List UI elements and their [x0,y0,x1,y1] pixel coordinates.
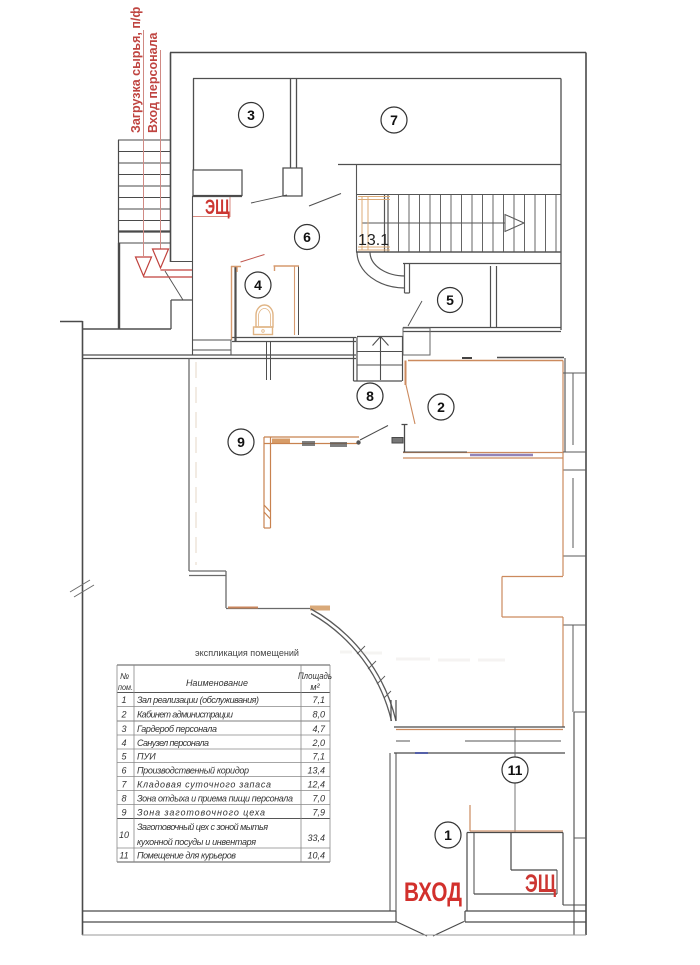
svg-text:7: 7 [390,112,398,128]
svg-text:6: 6 [303,229,311,245]
svg-text:Заготовочный цех с зоной мытья: Заготовочный цех с зоной мытья [137,822,268,832]
svg-text:4,7: 4,7 [312,724,326,734]
svg-text:8: 8 [366,388,374,404]
svg-text:Зона заготовочного цеха: Зона заготовочного цеха [137,808,265,818]
svg-text:Зона отдыха и приема пищи перс: Зона отдыха и приема пищи персонала [137,794,293,804]
svg-text:пом.: пом. [118,682,133,692]
svg-text:2: 2 [437,399,445,415]
svg-text:2,0: 2,0 [311,738,325,748]
svg-text:Производственный коридор: Производственный коридор [137,766,249,776]
svg-text:7,1: 7,1 [312,752,325,762]
svg-text:13.1: 13.1 [358,232,389,249]
svg-text:33,4: 33,4 [307,833,325,843]
svg-text:13,4: 13,4 [307,766,325,776]
svg-text:4: 4 [254,277,262,293]
svg-text:Помещение для курьеров: Помещение для курьеров [137,851,236,861]
svg-text:ВХОД: ВХОД [404,877,462,907]
svg-text:7,0: 7,0 [312,794,325,804]
svg-text:4: 4 [121,738,126,748]
svg-text:2: 2 [120,710,126,720]
svg-text:экспликация помещений: экспликация помещений [195,648,299,659]
svg-text:12,4: 12,4 [307,780,325,790]
svg-text:ПУИ: ПУИ [137,752,156,762]
svg-text:3: 3 [247,107,255,123]
svg-text:Гардероб персонала: Гардероб персонала [137,724,217,734]
svg-text:1: 1 [444,827,452,843]
svg-text:ЭЩ: ЭЩ [525,870,556,898]
svg-text:ЭЩ: ЭЩ [205,196,230,219]
svg-text:3: 3 [121,724,126,734]
svg-text:11: 11 [119,851,128,861]
svg-text:Площадь: Площадь [298,671,332,681]
svg-text:Наименование: Наименование [186,678,248,688]
svg-text:7,9: 7,9 [312,808,325,818]
svg-text:9: 9 [237,434,245,450]
svg-text:Вход персонала: Вход персонала [146,31,160,133]
svg-text:5: 5 [446,292,454,308]
svg-text:10,4: 10,4 [307,851,325,861]
svg-text:Кладовая суточного запаса: Кладовая суточного запаса [137,780,271,790]
svg-text:№: № [120,671,129,681]
svg-text:7,1: 7,1 [312,695,325,705]
svg-text:Санузел персонала: Санузел персонала [137,738,209,748]
svg-text:10: 10 [119,830,129,840]
svg-text:8: 8 [121,794,126,804]
svg-text:1: 1 [121,695,126,705]
svg-text:Кабинет администрации: Кабинет администрации [137,710,233,720]
svg-text:кухонной посуды и инвентаря: кухонной посуды и инвентаря [137,837,256,847]
svg-text:9: 9 [121,808,126,818]
svg-text:м²: м² [310,682,320,692]
svg-text:8,0: 8,0 [312,710,325,720]
svg-text:Зал реализации (обслуживания): Зал реализации (обслуживания) [137,695,259,705]
svg-text:11: 11 [508,762,523,778]
svg-text:Загрузка сырья, п/ф: Загрузка сырья, п/ф [129,7,143,133]
svg-text:6: 6 [121,766,126,776]
